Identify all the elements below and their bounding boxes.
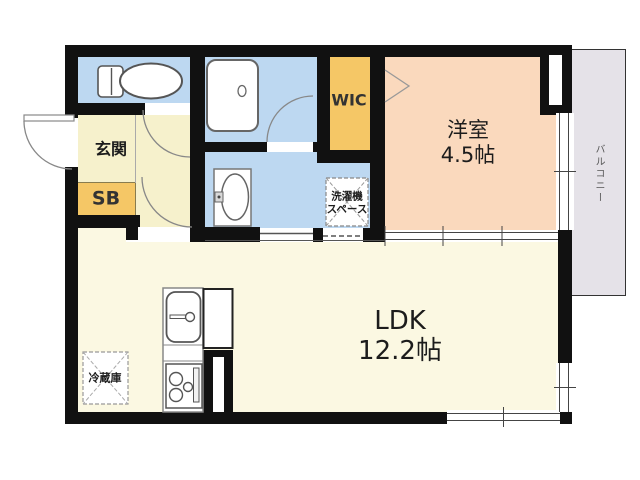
entrance-door xyxy=(24,115,74,169)
washer-space-label: 洗濯機 スペース xyxy=(327,190,368,215)
entrance-label: 玄関 xyxy=(95,139,127,158)
bath-door-arc xyxy=(267,96,313,142)
wic-label: WIC xyxy=(331,90,366,109)
partition-lines xyxy=(385,226,558,246)
refrigerator-label: 冷蔵庫 xyxy=(89,371,122,384)
sliding-door-lines xyxy=(205,234,385,241)
kitchen-sink-icon xyxy=(167,292,201,342)
ldk-label: LDK 12.2帖 xyxy=(358,307,442,367)
washbasin-icon xyxy=(214,169,251,226)
western-room-name: 洋室 xyxy=(441,118,495,143)
toilet-door-arc xyxy=(143,110,190,157)
ldk-name: LDK xyxy=(358,307,442,337)
washer-space-line2: スペース xyxy=(327,203,368,216)
bathtub-icon xyxy=(207,60,258,131)
wic-door-chevron xyxy=(385,70,409,102)
hall-door-arc xyxy=(142,177,192,227)
washer-space-line1: 洗濯機 xyxy=(327,190,368,203)
ldk-size: 12.2帖 xyxy=(358,337,442,367)
plan-linework xyxy=(0,0,640,480)
western-room-size: 4.5帖 xyxy=(441,143,495,168)
balcony-label: バルコニー xyxy=(592,144,604,204)
western-room-label: 洋室 4.5帖 xyxy=(441,118,495,168)
shoe-box-label: SB xyxy=(92,188,120,211)
counter-cabinet xyxy=(204,289,233,348)
floor-plan: 玄関 SB WIC 洋室 4.5帖 LDK 12.2帖 洗濯機 スペース 冷蔵庫… xyxy=(0,0,640,480)
toilet-icon xyxy=(98,64,182,99)
stove-icon xyxy=(166,364,202,408)
